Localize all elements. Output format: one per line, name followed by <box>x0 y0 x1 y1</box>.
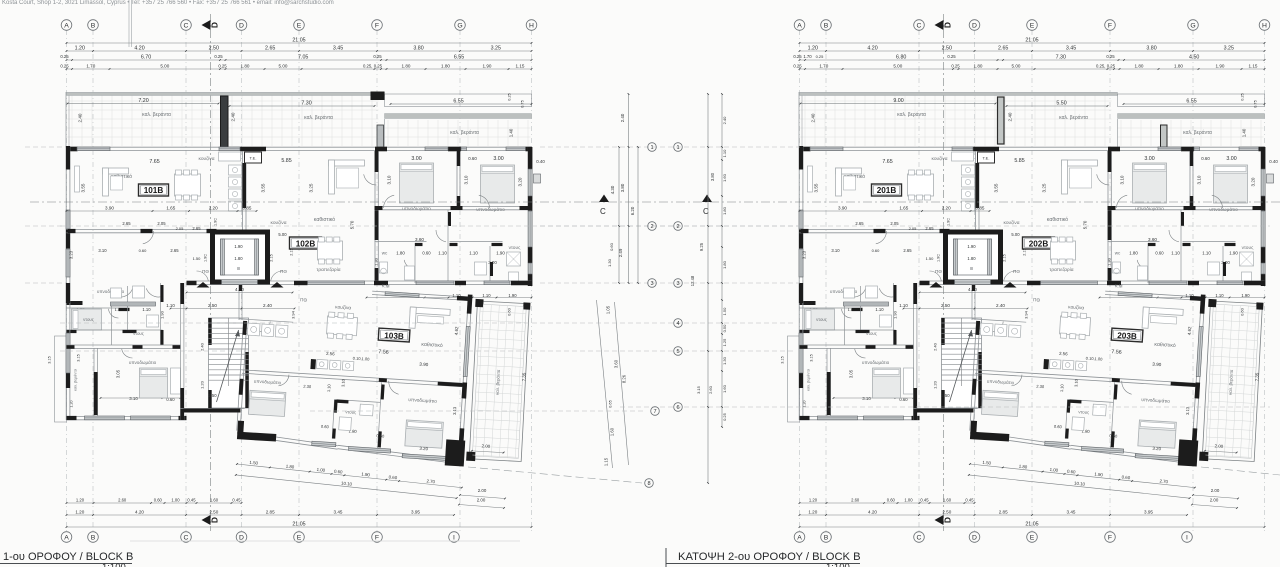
svg-text:1.9C: 1.9C <box>947 218 951 226</box>
svg-text:ντους: ντους <box>866 331 877 336</box>
svg-text:1.80: 1.80 <box>1135 64 1144 69</box>
svg-text:τραπεζαρία: τραπεζαρία <box>1050 267 1074 273</box>
svg-text:5.00: 5.00 <box>279 64 288 69</box>
svg-text:0.25: 0.25 <box>60 64 69 69</box>
svg-text:B: B <box>91 22 96 29</box>
svg-text:1.60: 1.60 <box>722 384 727 393</box>
svg-text:κουζίνα: κουζίνα <box>199 156 215 162</box>
svg-text:2.05: 2.05 <box>890 221 899 226</box>
svg-text:1:100: 1:100 <box>826 562 850 567</box>
svg-text:1.10: 1.10 <box>326 383 332 392</box>
svg-text:4.62: 4.62 <box>454 326 460 335</box>
svg-text:5.00: 5.00 <box>1011 232 1020 237</box>
svg-text:3.90: 3.90 <box>1152 362 1162 368</box>
svg-text:1.70: 1.70 <box>819 64 828 69</box>
svg-text:1.10: 1.10 <box>142 307 151 312</box>
svg-text:1.05: 1.05 <box>606 305 611 314</box>
svg-text:2.50: 2.50 <box>209 510 218 515</box>
svg-text:0.60: 0.60 <box>154 498 163 503</box>
svg-text:3.10: 3.10 <box>1073 378 1079 387</box>
svg-text:I: I <box>453 534 455 541</box>
svg-text:2.00: 2.00 <box>1215 443 1224 448</box>
svg-text:0.60: 0.60 <box>422 251 431 256</box>
svg-text:κουζίνα: κουζίνα <box>271 220 287 226</box>
svg-text:2.40: 2.40 <box>811 113 816 122</box>
svg-text:F: F <box>1108 22 1112 29</box>
svg-text:ΠΘ: ΠΘ <box>935 269 942 274</box>
svg-text:A: A <box>797 534 802 541</box>
svg-text:ΠΘ: ΠΘ <box>1013 269 1020 274</box>
svg-text:3: 3 <box>676 281 679 287</box>
svg-text:7.56: 7.56 <box>378 349 389 356</box>
svg-text:1.80: 1.80 <box>441 64 450 69</box>
svg-text:1.80: 1.80 <box>1129 251 1138 256</box>
svg-text:1.20: 1.20 <box>809 498 818 503</box>
svg-text:12.48: 12.48 <box>690 275 695 286</box>
svg-text:3.55: 3.55 <box>81 183 86 192</box>
svg-text:1.65: 1.65 <box>899 206 908 211</box>
svg-text:1.10: 1.10 <box>899 303 908 308</box>
svg-text:2.30: 2.30 <box>1036 384 1045 390</box>
svg-text:0.25: 0.25 <box>722 412 727 421</box>
svg-text:Kosta Court, Shop 1-2, 3021 Li: Kosta Court, Shop 1-2, 3021 Limassol, Cy… <box>2 0 334 6</box>
svg-text:5.00: 5.00 <box>278 232 287 237</box>
svg-text:1.90: 1.90 <box>1229 251 1238 256</box>
svg-text:1.10: 1.10 <box>438 251 447 256</box>
svg-text:7.65: 7.65 <box>882 159 892 165</box>
svg-text:3.10: 3.10 <box>340 378 346 387</box>
svg-text:1.20: 1.20 <box>808 46 818 52</box>
svg-text:G: G <box>1190 22 1195 29</box>
svg-text:B: B <box>91 534 96 541</box>
svg-text:D: D <box>972 22 977 29</box>
svg-text:ΙΙΙ: ΙΙΙ <box>970 266 974 271</box>
svg-text:1.9C: 1.9C <box>937 254 941 262</box>
svg-text:1.30: 1.30 <box>374 257 379 266</box>
svg-text:101B: 101B <box>144 186 164 195</box>
svg-text:2.40: 2.40 <box>996 303 1005 308</box>
svg-text:3.23: 3.23 <box>69 250 74 259</box>
svg-text:7.35: 7.35 <box>522 372 527 381</box>
svg-text:2.00: 2.00 <box>1211 488 1220 493</box>
svg-text:3.13: 3.13 <box>452 406 458 415</box>
svg-text:3.20: 3.20 <box>419 446 428 452</box>
svg-text:9.25: 9.25 <box>699 242 704 251</box>
svg-text:υπνοδωμάτιο: υπνοδωμάτιο <box>862 359 890 365</box>
svg-text:0.25: 0.25 <box>816 54 825 59</box>
svg-text:1.20: 1.20 <box>933 380 938 389</box>
svg-text:C: C <box>917 22 922 29</box>
svg-text:wc: wc <box>382 251 388 256</box>
svg-text:καλ. βεράντα: καλ. βεράντα <box>74 368 78 391</box>
svg-text:1.80: 1.80 <box>722 206 727 215</box>
svg-text:3.95: 3.95 <box>1144 510 1153 515</box>
svg-text:0.25, 0.25: 0.25, 0.25 <box>363 64 383 69</box>
svg-text:3.80: 3.80 <box>710 172 715 181</box>
svg-text:103B: 103B <box>384 331 404 341</box>
svg-text:E: E <box>297 534 302 541</box>
svg-text:D: D <box>239 22 244 29</box>
svg-text:5.70: 5.70 <box>350 220 355 229</box>
svg-text:2.60: 2.60 <box>708 385 713 394</box>
svg-text:2.20: 2.20 <box>209 206 218 211</box>
svg-text:3.10: 3.10 <box>1197 175 1202 184</box>
svg-text:A: A <box>64 22 69 29</box>
svg-text:2.65: 2.65 <box>170 248 179 253</box>
svg-text:3.10: 3.10 <box>464 175 469 184</box>
svg-text:0.60: 0.60 <box>1054 424 1063 430</box>
svg-text:21.05: 21.05 <box>1025 38 1038 44</box>
svg-text:0.75: 0.75 <box>520 99 525 108</box>
svg-text:2.15: 2.15 <box>270 254 274 261</box>
svg-text:1.80: 1.80 <box>241 64 250 69</box>
svg-text:0.25: 0.25 <box>947 54 956 59</box>
svg-text:4.30: 4.30 <box>610 185 615 194</box>
svg-text:D: D <box>943 22 953 28</box>
svg-text:καθιστικό: καθιστικό <box>314 216 336 223</box>
svg-text:0.25: 0.25 <box>508 93 512 100</box>
svg-text:καλ. βεράντα: καλ. βεράντα <box>142 111 171 118</box>
svg-text:0.25: 0.25 <box>218 64 227 69</box>
svg-text:ντους: ντους <box>816 317 827 322</box>
svg-text:G: G <box>457 22 462 29</box>
svg-text:1.10: 1.10 <box>166 303 175 308</box>
svg-text:0.60: 0.60 <box>1109 433 1118 439</box>
svg-text:2.85: 2.85 <box>266 510 275 515</box>
svg-text:3.10: 3.10 <box>387 175 392 184</box>
svg-text:6.70: 6.70 <box>141 55 151 61</box>
svg-text:1.20: 1.20 <box>200 380 205 389</box>
svg-text:1.70: 1.70 <box>86 64 95 69</box>
svg-text:2.30: 2.30 <box>303 384 312 390</box>
svg-text:3.20: 3.20 <box>518 177 523 186</box>
svg-text:6.20: 6.20 <box>630 206 635 215</box>
svg-text:1.80: 1.80 <box>1174 64 1183 69</box>
svg-text:καλ. βεράντα: καλ. βεράντα <box>897 111 926 118</box>
svg-text:2.00: 2.00 <box>478 488 487 493</box>
svg-text:C: C <box>184 534 189 541</box>
svg-text:T.E.: T.E. <box>983 156 990 161</box>
svg-text:4.50: 4.50 <box>1189 55 1199 61</box>
svg-text:2: 2 <box>676 224 679 230</box>
svg-text:1.30: 1.30 <box>1107 257 1112 266</box>
svg-text:3.90: 3.90 <box>419 362 429 368</box>
svg-text:καλ. βεράντα: καλ. βεράντα <box>1183 129 1212 136</box>
svg-text:2.50: 2.50 <box>941 393 950 398</box>
svg-text:2.56: 2.56 <box>326 351 335 357</box>
svg-text:7.05: 7.05 <box>298 55 308 61</box>
svg-text:1.00: 1.00 <box>1049 467 1059 473</box>
svg-text:7.30: 7.30 <box>1056 55 1066 61</box>
svg-text:E: E <box>1030 534 1035 541</box>
svg-text:1.80: 1.80 <box>1019 464 1029 470</box>
svg-text:3.80: 3.80 <box>413 46 423 52</box>
svg-text:2.05: 2.05 <box>176 226 185 231</box>
svg-text:B: B <box>824 534 829 541</box>
svg-text:6.80: 6.80 <box>896 55 906 61</box>
svg-text:ΙΙΙ: ΙΙΙ <box>237 266 241 271</box>
svg-text:0.25: 0.25 <box>373 54 382 59</box>
svg-text:2.70: 2.70 <box>426 478 436 484</box>
svg-text:2.05: 2.05 <box>909 226 918 231</box>
svg-text:2.40: 2.40 <box>620 113 625 122</box>
svg-text:καθιστικό: καθιστικό <box>1047 216 1069 223</box>
svg-text:8: 8 <box>647 481 650 487</box>
svg-text:2.50: 2.50 <box>941 303 950 308</box>
svg-text:C: C <box>184 22 189 29</box>
svg-text:0.60: 0.60 <box>872 248 881 253</box>
svg-text:2.40: 2.40 <box>933 342 938 351</box>
svg-text:5.50: 5.50 <box>1056 101 1066 107</box>
svg-text:καλ. βεράντα: καλ. βεράντα <box>450 129 479 136</box>
svg-text:2.50: 2.50 <box>942 46 952 52</box>
svg-text:3.95: 3.95 <box>411 510 420 515</box>
svg-text:0.60: 0.60 <box>609 242 614 251</box>
svg-text:1.90: 1.90 <box>234 244 243 249</box>
svg-text:6.55: 6.55 <box>454 55 464 61</box>
svg-text:1:100: 1:100 <box>102 562 126 567</box>
svg-text:ντους: ντους <box>1242 246 1255 251</box>
svg-text:ντους: ντους <box>509 246 522 251</box>
svg-text:2.65: 2.65 <box>855 221 864 226</box>
svg-text:0.60: 0.60 <box>887 498 896 503</box>
svg-text:1.10: 1.10 <box>1059 383 1065 392</box>
svg-text:4: 4 <box>676 321 679 327</box>
svg-text:1.60: 1.60 <box>722 173 727 182</box>
svg-text:D: D <box>972 534 977 541</box>
svg-text:1.15: 1.15 <box>604 457 609 466</box>
svg-text:3.15: 3.15 <box>810 354 814 361</box>
svg-text:1.80: 1.80 <box>286 464 296 470</box>
svg-text:D: D <box>943 517 953 523</box>
svg-text:3.94: 3.94 <box>1024 310 1029 319</box>
svg-text:3.20: 3.20 <box>1251 177 1256 186</box>
svg-text:1.30: 1.30 <box>607 258 612 267</box>
svg-text:0.25, 0.25: 0.25, 0.25 <box>1096 64 1116 69</box>
svg-text:2.15: 2.15 <box>1003 254 1007 261</box>
svg-text:3.25: 3.25 <box>1042 183 1047 192</box>
svg-text:B: B <box>824 22 829 29</box>
svg-text:1.40: 1.40 <box>509 128 514 137</box>
svg-text:21.05: 21.05 <box>292 38 305 44</box>
svg-text:Κ.Μ: Κ.Μ <box>382 283 390 288</box>
svg-text:κουζίνα: κουζίνα <box>335 304 352 311</box>
svg-text:καλ. βεράντα: καλ. βεράντα <box>304 114 333 121</box>
svg-text:1.50: 1.50 <box>982 460 992 466</box>
svg-text:4.62: 4.62 <box>1187 326 1193 335</box>
svg-text:ντους: ντους <box>83 317 94 322</box>
svg-text:5.85: 5.85 <box>281 158 291 164</box>
svg-text:0.50: 0.50 <box>722 324 727 333</box>
svg-text:1.25: 1.25 <box>722 338 727 347</box>
svg-text:0.25: 0.25 <box>951 64 960 69</box>
svg-text:ντους: ντους <box>345 409 356 415</box>
svg-text:1.80: 1.80 <box>967 256 976 261</box>
svg-text:καλ. βεράντα: καλ. βεράντα <box>1059 114 1088 121</box>
svg-text:1.80: 1.80 <box>974 64 983 69</box>
svg-text:1.15: 1.15 <box>516 64 525 69</box>
svg-text:F: F <box>375 22 379 29</box>
svg-text:0.25: 0.25 <box>793 64 802 69</box>
svg-text:7.35: 7.35 <box>1255 372 1260 381</box>
svg-text:3.15: 3.15 <box>48 356 52 363</box>
svg-text:1.50: 1.50 <box>722 307 727 316</box>
svg-text:3.55: 3.55 <box>814 183 819 192</box>
svg-text:1.10: 1.10 <box>469 251 478 256</box>
svg-text:D: D <box>210 22 220 28</box>
svg-text:2.50: 2.50 <box>942 510 951 515</box>
svg-text:4.20: 4.20 <box>135 510 144 515</box>
svg-text:1.90: 1.90 <box>967 244 976 249</box>
svg-text:0.45: 0.45 <box>965 498 974 503</box>
svg-text:D: D <box>210 517 220 523</box>
svg-text:3.45: 3.45 <box>1067 510 1076 515</box>
svg-text:ΠΘ: ΠΘ <box>1033 297 1041 302</box>
svg-text:2.40: 2.40 <box>231 112 236 121</box>
svg-text:1.20: 1.20 <box>808 510 817 515</box>
svg-text:C: C <box>917 534 922 541</box>
svg-text:H: H <box>1262 22 1267 29</box>
svg-text:1.60: 1.60 <box>943 498 952 503</box>
svg-text:2.00: 2.00 <box>477 498 486 503</box>
svg-text:3.55: 3.55 <box>261 183 266 192</box>
svg-text:3.25: 3.25 <box>1224 46 1234 52</box>
svg-text:0.25: 0.25 <box>793 54 802 59</box>
svg-text:υπνοδωμάτιο: υπνοδωμάτιο <box>402 205 431 212</box>
svg-text:2.65: 2.65 <box>192 226 201 231</box>
svg-text:201B: 201B <box>877 186 897 195</box>
svg-text:5.70: 5.70 <box>1083 220 1088 229</box>
svg-text:1.50: 1.50 <box>249 460 259 466</box>
svg-text:0.40: 0.40 <box>536 159 545 164</box>
svg-text:0.60: 0.60 <box>1201 156 1210 161</box>
svg-text:1.40: 1.40 <box>1242 128 1247 137</box>
svg-text:κουζίνα: κουζίνα <box>1068 304 1085 311</box>
svg-text:0.60: 0.60 <box>139 248 148 253</box>
svg-text:0.10,1.00: 0.10,1.00 <box>353 356 371 362</box>
svg-text:1.10: 1.10 <box>722 149 727 158</box>
svg-text:2.56: 2.56 <box>1059 351 1068 357</box>
svg-text:3.23: 3.23 <box>802 250 807 259</box>
svg-text:2.40: 2.40 <box>1008 112 1013 121</box>
svg-text:1.80: 1.80 <box>234 256 243 261</box>
svg-text:3.45: 3.45 <box>334 510 343 515</box>
svg-text:2.05: 2.05 <box>157 221 166 226</box>
svg-text:3.45: 3.45 <box>1066 46 1076 52</box>
svg-text:1.30: 1.30 <box>722 356 727 365</box>
svg-text:3.00: 3.00 <box>1144 156 1154 162</box>
svg-text:E: E <box>297 22 302 29</box>
svg-text:3.15: 3.15 <box>781 356 785 363</box>
svg-text:3.10: 3.10 <box>129 396 138 401</box>
svg-text:1.00: 1.00 <box>316 467 326 473</box>
svg-text:7.65: 7.65 <box>149 159 159 165</box>
svg-text:3.94: 3.94 <box>291 310 296 319</box>
svg-text:1.90: 1.90 <box>1094 472 1104 478</box>
svg-text:ντους: ντους <box>133 331 144 336</box>
svg-text:καλ. βεράντα: καλ. βεράντα <box>807 368 811 391</box>
svg-text:6.55: 6.55 <box>453 99 463 105</box>
svg-text:2.49: 2.49 <box>618 248 623 257</box>
svg-text:3: 3 <box>650 281 653 287</box>
svg-text:21.05: 21.05 <box>1025 522 1038 528</box>
svg-text:1.90: 1.90 <box>361 472 371 478</box>
svg-text:C: C <box>600 207 606 216</box>
svg-text:2.20: 2.20 <box>942 206 951 211</box>
svg-text:D: D <box>239 534 244 541</box>
svg-text:υπνοδωμάτιο: υπνοδωμάτιο <box>1135 205 1164 212</box>
svg-text:3.10: 3.10 <box>98 248 107 253</box>
svg-text:5.00: 5.00 <box>893 64 902 69</box>
svg-text:1.20: 1.20 <box>76 498 85 503</box>
svg-text:4.20: 4.20 <box>134 46 144 52</box>
svg-text:1.60: 1.60 <box>210 498 219 503</box>
svg-text:3.13: 3.13 <box>1185 406 1191 415</box>
svg-text:2.60: 2.60 <box>851 498 860 503</box>
svg-text:3.10: 3.10 <box>1120 175 1125 184</box>
svg-text:H: H <box>529 22 534 29</box>
svg-text:7.56: 7.56 <box>1111 349 1122 356</box>
svg-text:1.80: 1.80 <box>402 64 411 69</box>
svg-text:3.25: 3.25 <box>491 46 501 52</box>
svg-text:T.E.: T.E. <box>250 156 257 161</box>
svg-text:1.10: 1.10 <box>1171 251 1180 256</box>
svg-text:0.10,1.00: 0.10,1.00 <box>1086 356 1104 362</box>
svg-text:κουζίνα: κουζίνα <box>1004 220 1020 226</box>
svg-text:0.40: 0.40 <box>1269 159 1278 164</box>
svg-text:7.20: 7.20 <box>138 98 148 104</box>
svg-text:0.60: 0.60 <box>1155 251 1164 256</box>
svg-text:3.00: 3.00 <box>493 156 503 162</box>
svg-text:4.20: 4.20 <box>867 46 877 52</box>
svg-text:4.20: 4.20 <box>868 510 877 515</box>
svg-text:1: 1 <box>676 145 679 151</box>
svg-text:2.65: 2.65 <box>998 46 1008 52</box>
svg-text:2.50: 2.50 <box>208 393 217 398</box>
svg-text:5.85: 5.85 <box>1014 158 1024 164</box>
svg-text:0.45: 0.45 <box>232 498 241 503</box>
svg-text:0.60: 0.60 <box>376 433 385 439</box>
svg-text:1.90: 1.90 <box>496 251 505 256</box>
svg-text:2.65: 2.65 <box>265 46 275 52</box>
svg-text:21.05: 21.05 <box>292 522 305 528</box>
svg-text:2.40: 2.40 <box>722 116 727 125</box>
svg-text:3.05: 3.05 <box>849 369 854 378</box>
svg-text:3.10: 3.10 <box>831 248 840 253</box>
svg-text:2.65: 2.65 <box>925 226 934 231</box>
svg-text:1.50: 1.50 <box>193 256 202 261</box>
svg-text:3.45: 3.45 <box>333 46 343 52</box>
svg-text:3.10: 3.10 <box>862 396 871 401</box>
svg-text:A: A <box>64 534 69 541</box>
svg-text:0.25: 0.25 <box>1106 54 1115 59</box>
svg-text:Κ.Μ: Κ.Μ <box>1115 283 1123 288</box>
svg-text:τραπεζαρία: τραπεζαρία <box>317 267 341 273</box>
svg-text:2.65: 2.65 <box>122 221 131 226</box>
svg-text:υπνοδωμάτιο: υπνοδωμάτιο <box>129 359 157 365</box>
svg-text:7: 7 <box>653 409 656 415</box>
svg-text:3.55: 3.55 <box>994 183 999 192</box>
svg-text:A: A <box>797 22 802 29</box>
svg-text:3.00: 3.00 <box>1226 156 1236 162</box>
svg-text:3.15: 3.15 <box>696 385 701 394</box>
svg-text:1.20: 1.20 <box>75 46 85 52</box>
svg-text:0.60: 0.60 <box>334 469 344 475</box>
svg-text:1.00: 1.00 <box>904 498 913 503</box>
svg-text:κουζίνα: κουζίνα <box>932 156 948 162</box>
svg-text:3.20: 3.20 <box>1152 446 1161 452</box>
svg-text:102B: 102B <box>296 240 316 249</box>
